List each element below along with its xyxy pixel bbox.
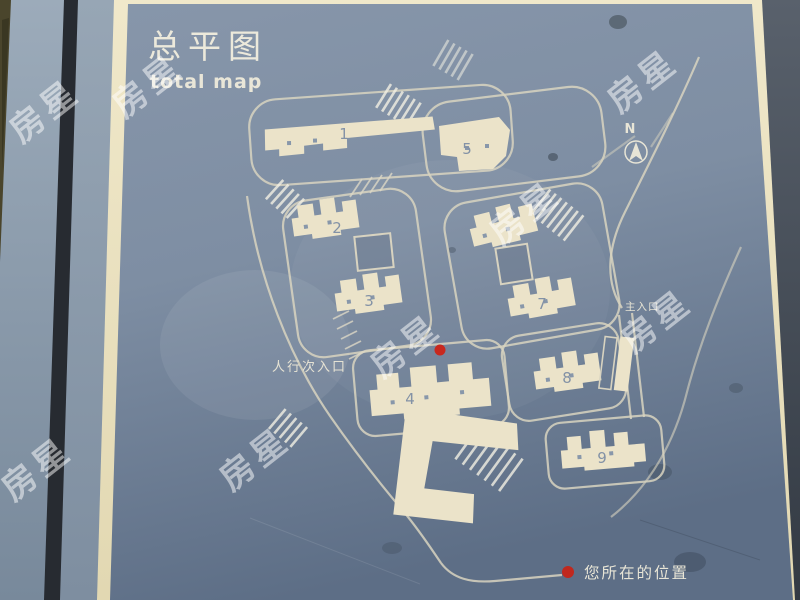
- building-label-7: 7: [537, 295, 547, 313]
- stain: [729, 383, 743, 393]
- building-label-1: 1: [339, 125, 349, 143]
- stain: [548, 153, 558, 161]
- site-map-photo: 1 2 3 4 5 7 8 9 总平图 total map N 人行次入口 主入…: [0, 0, 800, 600]
- building-label-2: 2: [332, 219, 342, 237]
- building-label-8: 8: [562, 369, 572, 387]
- building-label-4: 4: [405, 390, 415, 408]
- building-label-3: 3: [364, 292, 374, 310]
- amenity-square: [495, 244, 532, 285]
- building-label-9: 9: [597, 449, 607, 467]
- stain: [382, 542, 402, 554]
- legend-label: 您所在的位置: [584, 564, 689, 582]
- secondary-entrance-label: 人行次入口: [272, 359, 347, 375]
- north-label: N: [625, 122, 636, 137]
- building-label-5: 5: [462, 140, 472, 158]
- legend-marker-icon: [562, 566, 574, 578]
- amenity-square: [354, 233, 393, 271]
- stain: [609, 15, 627, 29]
